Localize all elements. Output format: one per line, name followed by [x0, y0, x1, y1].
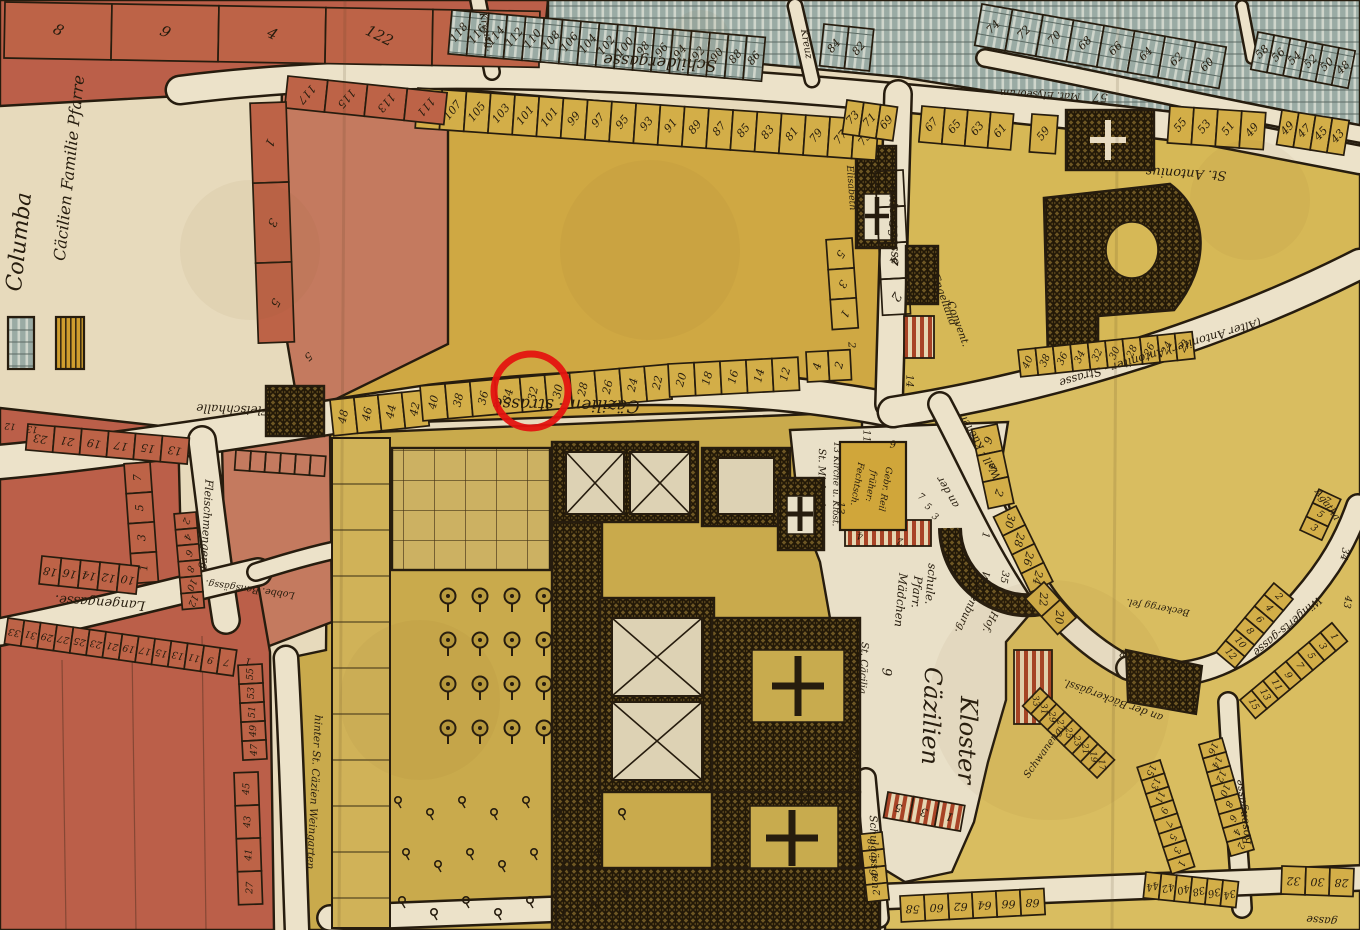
plot-strip-weingarten-col-a: 5553514947 — [238, 664, 267, 760]
plot-number: 47 — [249, 743, 260, 757]
map-label-schulgaessgen: Schulgässgen — [867, 815, 882, 889]
plot-number: 10 — [120, 572, 136, 587]
map-label-gasse-bottom: gasse — [1305, 913, 1338, 929]
plot-number: 19 — [86, 436, 102, 451]
plot-number: 21 — [59, 433, 76, 448]
plot-number: 17 — [113, 438, 129, 453]
plot-number: 62 — [953, 900, 967, 913]
plot-number: 3 — [135, 534, 148, 541]
garden-beds — [392, 448, 550, 570]
plot-strip-elisabeth-row: 737169 — [841, 100, 898, 141]
map-label-n1-lang: 1 — [244, 655, 251, 667]
plot-strip-caecilien-north-c: 2018161412 — [668, 357, 800, 397]
map-label-st-michaels: St. Michaels — [815, 448, 827, 511]
plot-number: 30 — [1310, 875, 1324, 888]
plot-strip-antonius-59: 59 — [1029, 114, 1058, 154]
map-label-n13-edge: 13 — [26, 423, 39, 434]
map-label-pastorat: Pastorat — [844, 745, 860, 795]
plot-number: 28 — [1334, 876, 1349, 890]
plot-number: 60 — [929, 901, 943, 914]
map-label-n13-mich: 13 — [834, 501, 845, 514]
legend-swatch-columba — [8, 317, 34, 369]
plot-number: 18 — [42, 564, 58, 579]
plot-number: 53 — [246, 687, 257, 699]
st-antonius-courtyard — [1106, 222, 1158, 278]
courtyard — [718, 458, 774, 514]
map-label-n57: 57 — [1092, 90, 1108, 105]
map-canvas: 8941221201181161141121101081061041021009… — [0, 0, 1360, 930]
map-label-n11-mich: 11 — [861, 430, 872, 443]
plot-number: 68 — [1025, 896, 1039, 909]
legend-swatch-caecilien — [56, 317, 84, 369]
plot-number: 15 — [140, 440, 156, 455]
hatched-building — [556, 868, 880, 930]
plot-number: 2 — [872, 889, 883, 896]
plot-number: 45 — [241, 783, 253, 797]
plot-number: 43 — [242, 816, 254, 830]
plot-number: 14 — [81, 568, 97, 583]
map-label-n4-stripe: 4 — [856, 529, 864, 541]
plot-strip-schilder-north-b: 8482 — [820, 24, 874, 71]
plot-strip-elisabeth-col: 531 — [826, 238, 858, 330]
map-label-peter: Peter — [790, 791, 822, 806]
plot-number: 58 — [905, 902, 919, 915]
paper-stain — [930, 580, 1170, 820]
plot-strip-weingarten-col-b: 45434127 — [234, 772, 263, 905]
map-label-antonsgasse: antonsgasse — [886, 187, 904, 266]
map-label-n9-kirche: 9 — [878, 668, 893, 677]
plot-number: 64 — [977, 898, 991, 911]
map-label-n12-edge: 12 — [4, 420, 17, 431]
plot-number: 32 — [1286, 874, 1300, 887]
map-label-fleischhalle: Fleischhalle — [196, 401, 271, 418]
map-label-n34: 34 — [1337, 547, 1350, 561]
historical-map: 8941221201181161141121101081061041021009… — [0, 0, 1360, 930]
plot-number: 7 — [131, 474, 144, 481]
map-label-n35: 35 — [997, 570, 1010, 584]
plot-number: 55 — [245, 668, 256, 680]
paper-stain — [180, 180, 320, 320]
plot-number: 51 — [247, 706, 258, 718]
plot-number: 27 — [244, 881, 256, 896]
map-label-n14: 14 — [904, 375, 915, 388]
plot-number: 5 — [133, 504, 146, 511]
map-label-n2-stripe: 2 — [896, 535, 904, 547]
paper-stain — [560, 160, 740, 340]
paper-stain — [670, 10, 730, 70]
plot-number: 13 — [167, 443, 183, 458]
map-label-n2-elis: 2 — [846, 341, 857, 348]
paper-stain — [1190, 140, 1310, 260]
plot-number: 66 — [1001, 897, 1015, 910]
plot-number: 12 — [100, 570, 116, 585]
paper-stain — [340, 620, 500, 780]
map-label-n43: 43 — [1340, 594, 1353, 609]
plot-number: 16 — [61, 566, 77, 581]
plot-strip-antons-top-row: 67656361 — [919, 106, 1014, 150]
striped-building — [904, 316, 934, 358]
street-weingarten-street — [286, 658, 297, 930]
plot-strip-bottom-row-b: 323028 — [1281, 866, 1354, 896]
plot-number: 41 — [243, 849, 255, 863]
plot-number: 49 — [248, 725, 259, 738]
plot-strip-caecilien-north-d: 42 — [806, 350, 852, 382]
